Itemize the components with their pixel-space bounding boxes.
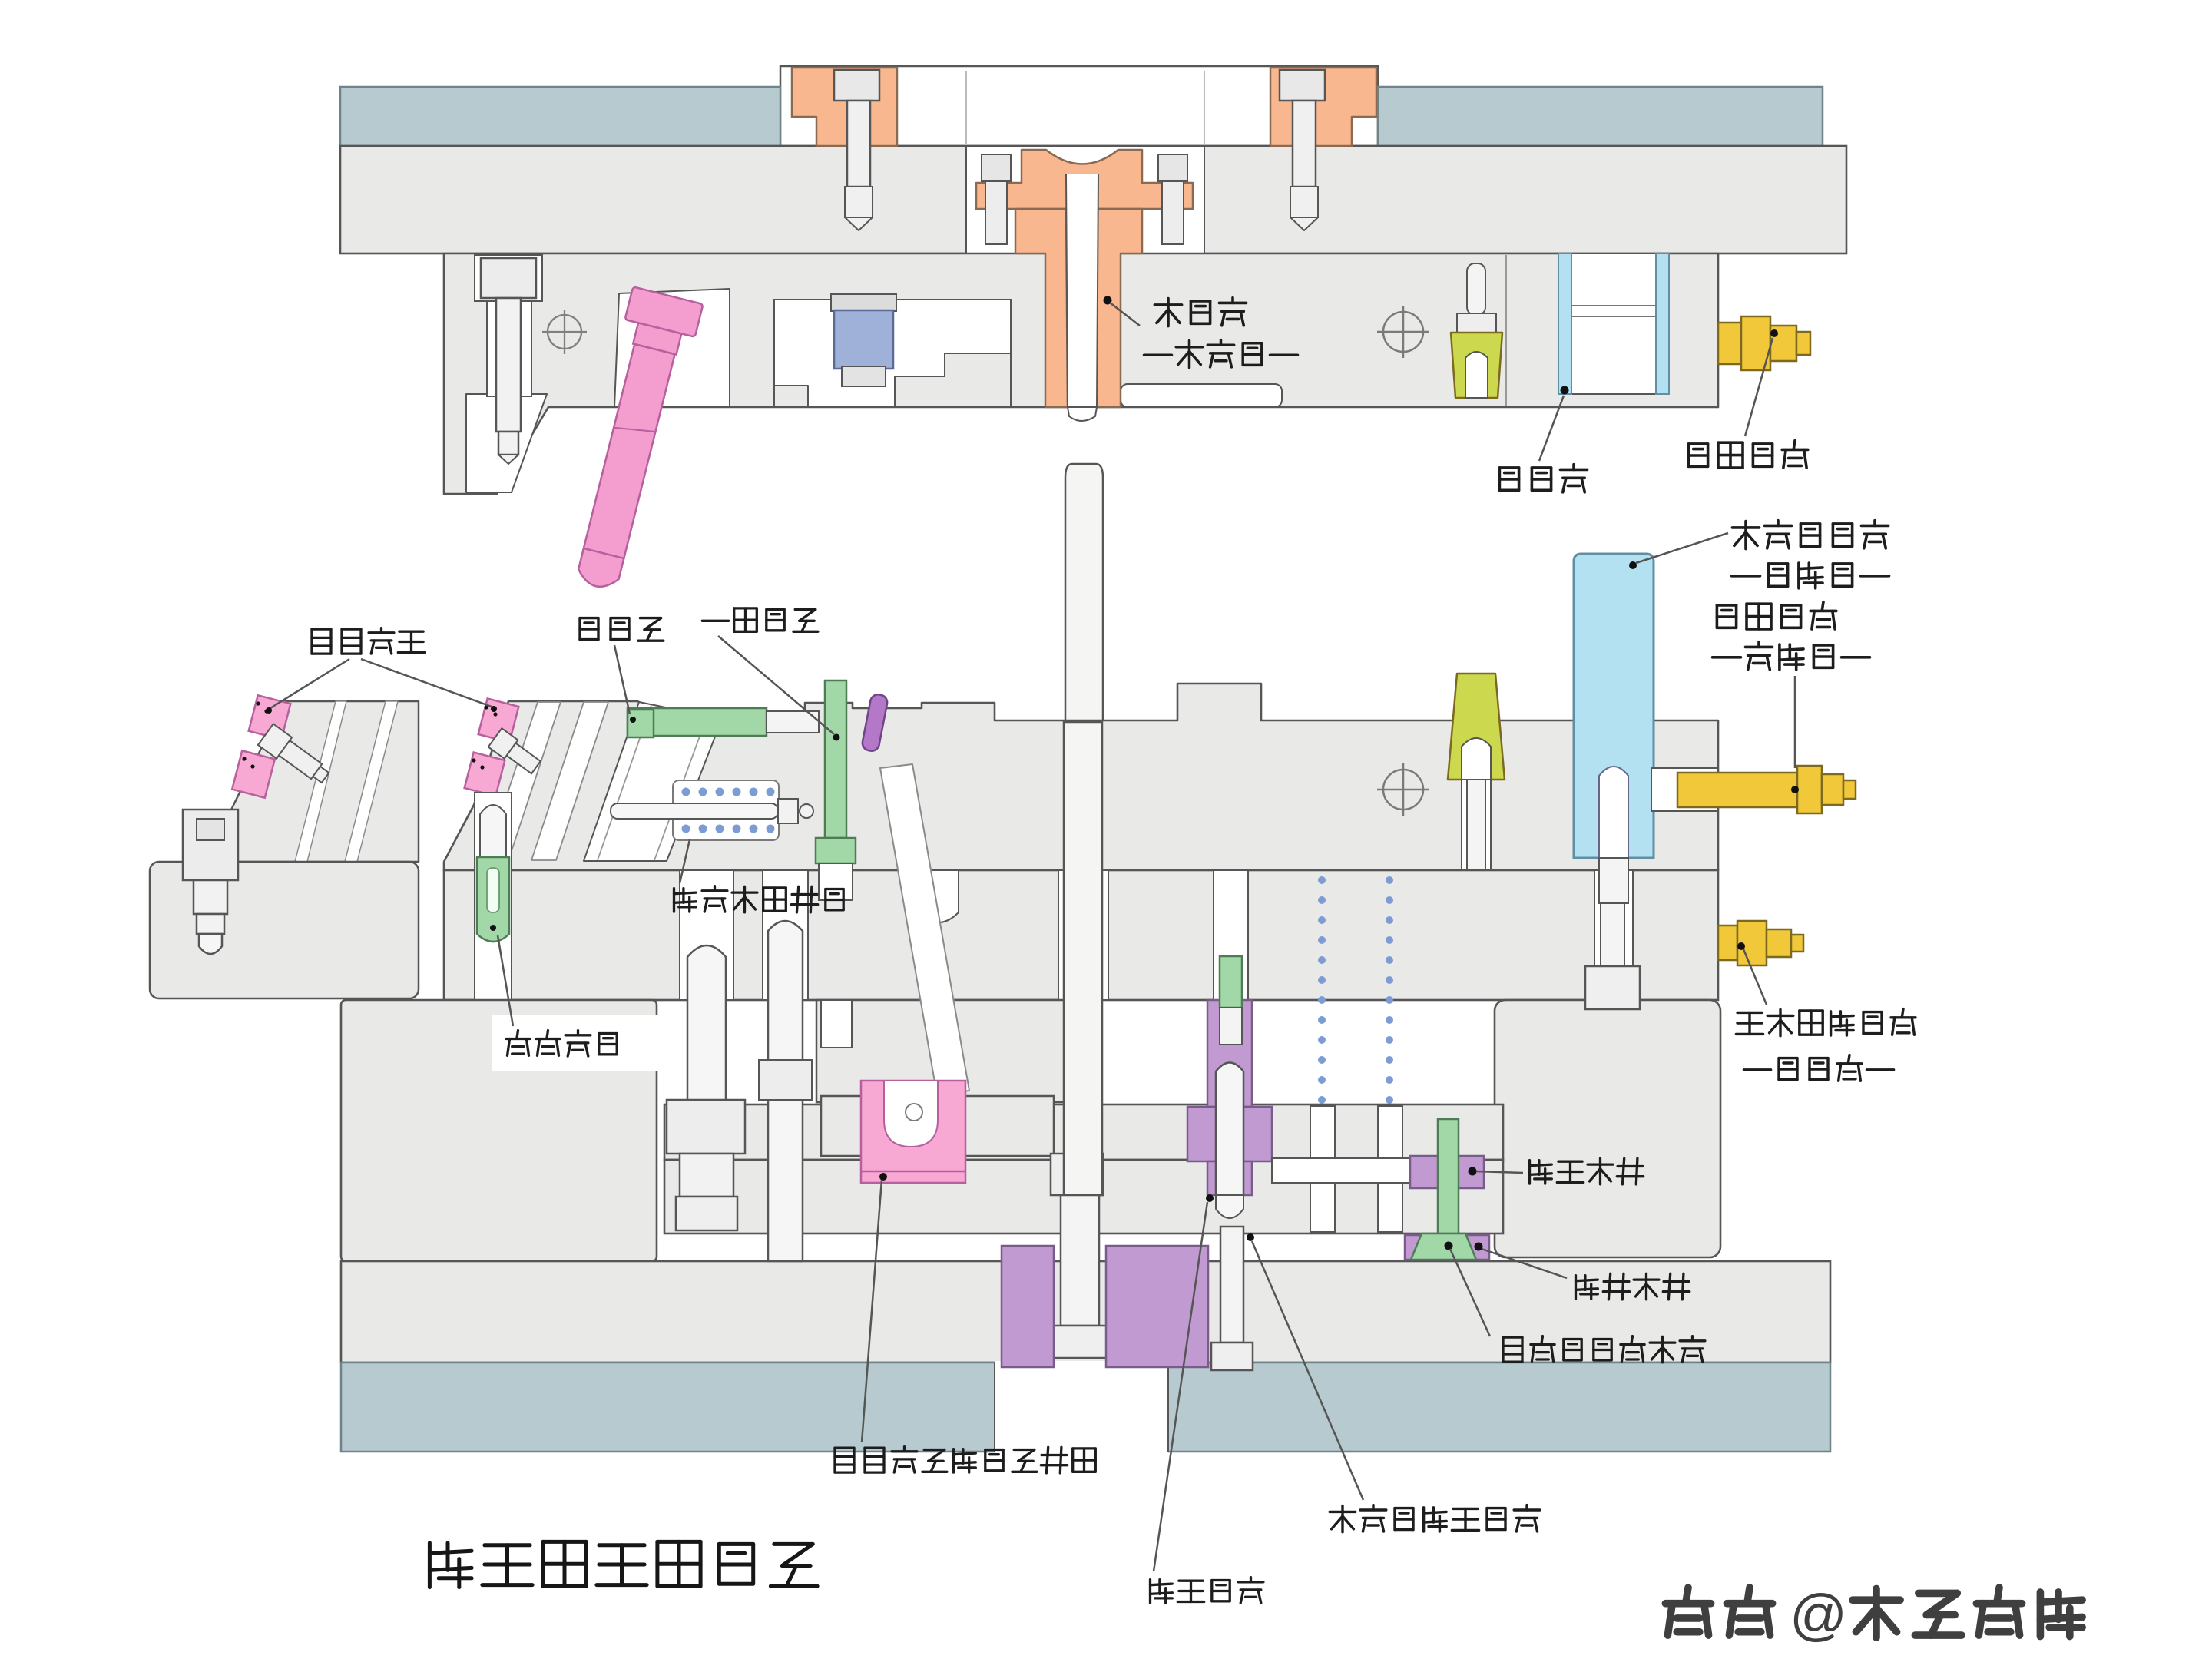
svg-text:@: @	[1790, 1583, 1847, 1647]
